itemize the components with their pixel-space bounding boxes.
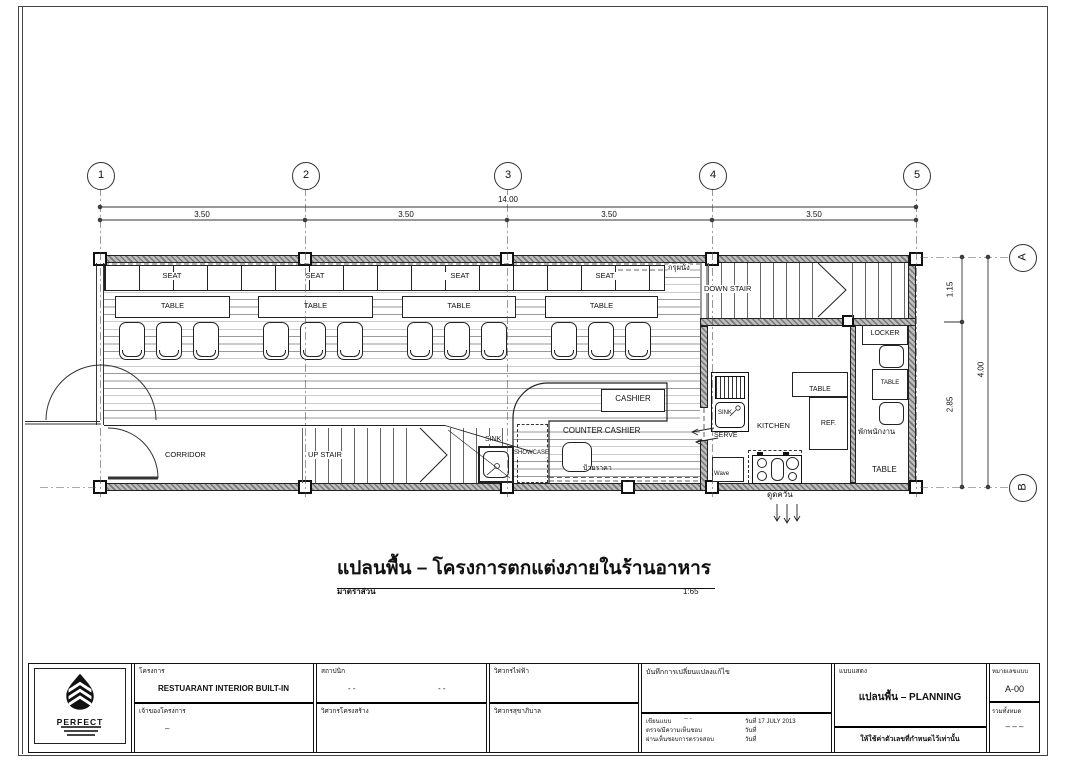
logo-fineprint (67, 734, 95, 736)
project-label: โครงการ (139, 666, 165, 676)
down-stair-label: DOWN STAIR (704, 285, 751, 293)
logo-box: PERFECT (34, 668, 126, 744)
column (705, 480, 719, 494)
seat-label: SEAT (299, 272, 331, 280)
stove (752, 455, 802, 484)
serve-label: SERVE (714, 432, 738, 440)
tb-divider (313, 663, 314, 753)
cashier-label: CASHIER (601, 395, 665, 404)
dim-segment: 3.50 (800, 210, 828, 219)
ref-label: REF. (809, 420, 848, 428)
electrical-label: วิศวกรไฟฟ้า (494, 666, 529, 676)
column (93, 480, 107, 494)
staff-bottom-table-label: TABLE (872, 466, 897, 475)
grid-bubble-A-label: A (1011, 253, 1035, 260)
grid-bubble-2: 2 (292, 162, 320, 190)
exhaust-label: ดูดควัน (767, 491, 793, 500)
tb-hdivider (489, 702, 638, 704)
sink-basin (483, 451, 509, 478)
chair (551, 322, 577, 360)
grid-bubble-A: A (1009, 244, 1037, 272)
chair (193, 322, 219, 360)
owner-value: – (165, 724, 169, 733)
chair (625, 322, 651, 360)
date-label-3: วันที่ (745, 734, 756, 744)
price-sign-label: ป้ายราคา (583, 465, 612, 473)
grid-bubble-4: 4 (699, 162, 727, 190)
titleblock-note: ให้ใช้ค่าตัวเลขที่กำหนดไว้เท่านั้น (834, 734, 986, 745)
tb-divider (989, 663, 990, 753)
showcase-label: SHOWCASE (514, 450, 549, 457)
tb-hdivider (834, 726, 986, 728)
drawing-title: แปลนพื้น – โครงการตกแต่งภายในร้านอาหาร (337, 553, 715, 589)
column (621, 480, 635, 494)
dim-total-height: 4.00 (977, 356, 986, 384)
kitchen-left-wall-upper (700, 326, 708, 408)
grid-bubble-3: 3 (494, 162, 522, 190)
architect-value: - - (348, 684, 356, 693)
approved-label: ผ่านเห็นชอบการตรวจสอบ (646, 734, 714, 744)
sheet-no-value: A-00 (989, 684, 1040, 694)
grid-bubble-5: 5 (903, 162, 931, 190)
shows-value: แปลนพื้น – PLANNING (834, 690, 986, 705)
grid-bubble-2-label: 2 (303, 169, 309, 181)
dim-total-width: 14.00 (491, 195, 525, 204)
table-label: TABLE (115, 302, 230, 310)
right-wall (908, 255, 916, 491)
dim-segment: 3.50 (595, 210, 623, 219)
revision-label: บันทึกการเปลี่ยนแปลงแก้ไข (646, 667, 730, 678)
grid-bubble-3-label: 3 (505, 169, 511, 181)
staff-chair (879, 345, 904, 368)
table-label: TABLE (402, 302, 516, 310)
sink-label: SINK (485, 436, 501, 444)
table-label: TABLE (258, 302, 373, 310)
chair (119, 322, 145, 360)
seat-label: SEAT (156, 272, 188, 280)
tb-divider (641, 663, 642, 753)
stove-mark (783, 452, 789, 455)
tb-hdivider (989, 701, 1040, 703)
chair (263, 322, 289, 360)
grid-bubble-B-label: B (1011, 483, 1035, 490)
chair (337, 322, 363, 360)
staff-table-label: TABLE (872, 380, 908, 387)
tb-divider (316, 663, 317, 753)
griddle (771, 458, 784, 481)
tb-divider (131, 663, 132, 753)
column (909, 252, 923, 266)
grid-bubble-B: B (1009, 474, 1037, 502)
burner (757, 458, 767, 468)
tb-divider (638, 663, 639, 753)
dim-segment: 3.50 (188, 210, 216, 219)
wall-cladding-label: กรุผนัง (668, 264, 690, 272)
kitchen-sink-label: SINK (718, 410, 732, 417)
tb-divider (489, 663, 490, 753)
structural-label: วิศวกรโครงสร้าง (321, 706, 369, 716)
scale-value: 1:65 (683, 588, 699, 597)
tb-divider (134, 663, 135, 753)
column (909, 480, 923, 494)
counter-cashier-label: COUNTER CASHIER (563, 427, 640, 436)
stove-mark (757, 452, 763, 455)
scale-label: มาตราส่วน (337, 588, 376, 597)
perfect-logo-icon (58, 672, 102, 712)
column (298, 252, 312, 266)
drawn-value: -- - (684, 716, 692, 722)
tb-hdivider (641, 712, 831, 714)
up-stair-label: UP STAIR (308, 451, 342, 459)
kitchen-table-label: TABLE (792, 386, 848, 394)
table-label: TABLE (545, 302, 658, 310)
tb-divider (986, 663, 987, 753)
chair (156, 322, 182, 360)
dim-segment-v: 2.85 (946, 391, 955, 419)
chair (588, 322, 614, 360)
shows-label: แบบแสดง (839, 666, 867, 676)
chair (407, 322, 433, 360)
tb-hdivider (134, 702, 313, 704)
architect-value-2: - - (438, 684, 446, 693)
grid-bubble-5-label: 5 (914, 169, 920, 181)
total-label: รวมทั้งหมด (992, 706, 1021, 716)
sheet-no-label: หมายเลขแบบ (992, 666, 1028, 676)
tb-divider (831, 663, 832, 753)
staffroom-wall (850, 326, 856, 483)
microwave (712, 457, 744, 482)
chair (300, 322, 326, 360)
down-stair-treads (852, 263, 908, 318)
column (500, 252, 514, 266)
total-value: – – – (989, 722, 1040, 731)
grid-bubble-4-label: 4 (710, 169, 716, 181)
drawing-sheet: SEAT SEAT SEAT SEAT TABLE TABLE TABLE TA… (0, 0, 1065, 760)
burner (786, 457, 799, 470)
sheet-border-inner-left (22, 6, 23, 754)
corridor-label: CORRIDOR (165, 451, 206, 459)
tb-hdivider (316, 702, 486, 704)
chair (481, 322, 507, 360)
grid-bubble-1: 1 (87, 162, 115, 190)
seat-label: SEAT (444, 272, 476, 280)
sanitary-label: วิศวกรสุขาภิบาล (494, 706, 541, 716)
architect-label: สถาปนิก (321, 666, 345, 676)
date-value: 17 JULY 2013 (758, 719, 795, 725)
dim-segment-v: 1.15 (946, 276, 955, 304)
owner-label: เจ้าของโครงการ (139, 706, 186, 716)
staff-room-label: พักพนักงาน (858, 428, 895, 436)
chair (444, 322, 470, 360)
microwave-label: Wave (714, 471, 729, 478)
kitchen-sink-drainboard (715, 376, 745, 399)
locker-label: LOCKER (862, 330, 908, 338)
burner (757, 471, 767, 481)
seat-label: SEAT (589, 272, 621, 280)
dim-segment: 3.50 (392, 210, 420, 219)
logo-fineprint (61, 726, 101, 728)
staff-chair (879, 402, 904, 425)
tb-divider (486, 663, 487, 753)
kitchen-label: KITCHEN (757, 422, 790, 430)
burner (788, 472, 797, 481)
grid-bubble-1-label: 1 (98, 169, 104, 181)
project-value: RESTUARANT INTERIOR BUILT-IN (134, 684, 313, 693)
bench-seat-row (104, 265, 665, 291)
logo-fineprint (64, 730, 98, 732)
column (93, 252, 107, 266)
